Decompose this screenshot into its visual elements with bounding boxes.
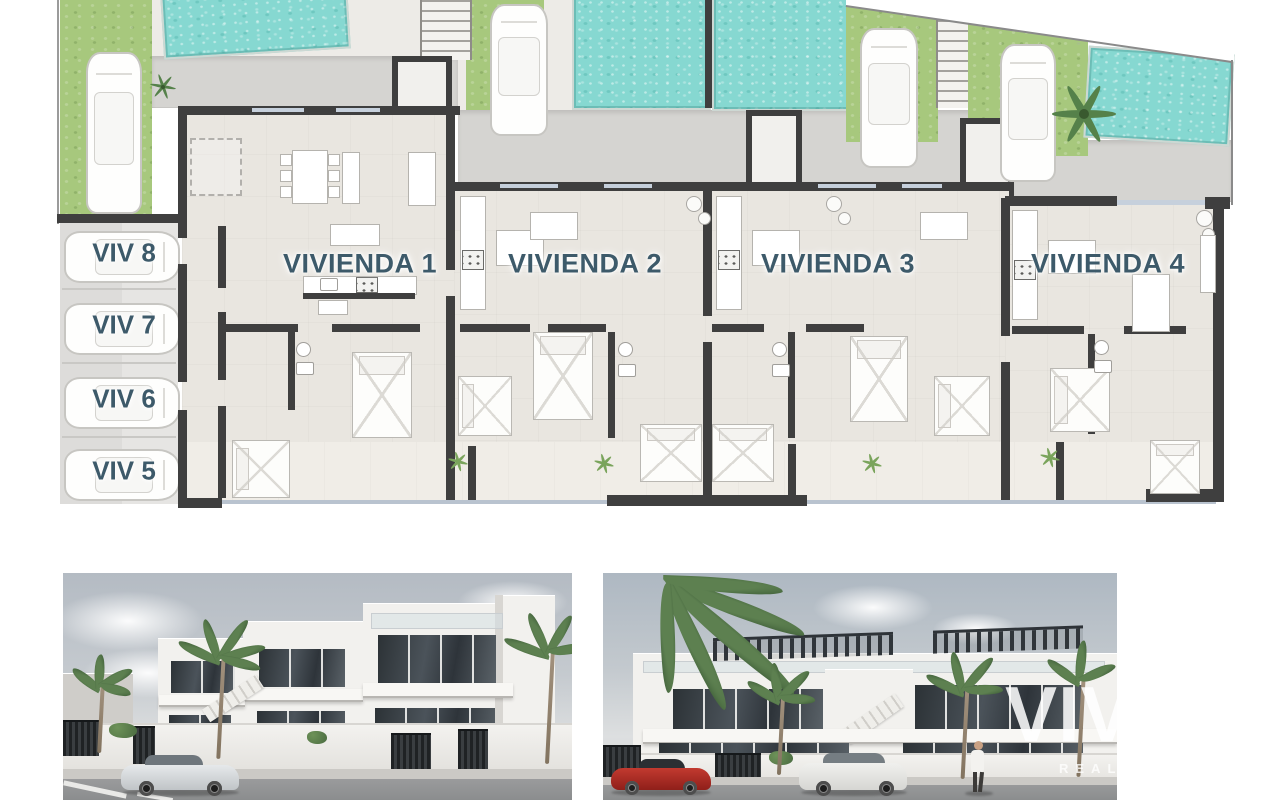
car-icon bbox=[860, 28, 918, 168]
chair bbox=[280, 170, 292, 182]
dining-table bbox=[1132, 274, 1170, 332]
stall-divider bbox=[62, 436, 176, 438]
wall bbox=[57, 214, 186, 223]
wall bbox=[332, 324, 420, 332]
pool-2 bbox=[572, 0, 711, 110]
car-icon bbox=[1000, 44, 1056, 182]
chair bbox=[328, 170, 340, 182]
sofa bbox=[330, 224, 380, 246]
stairs-entry-left bbox=[420, 0, 472, 60]
unit-label-vivienda-1: VIVIENDA 1 bbox=[283, 249, 437, 280]
balcony-slab bbox=[363, 683, 513, 698]
plant-pot bbox=[686, 196, 702, 212]
wall bbox=[712, 324, 764, 332]
plant-pot bbox=[1196, 210, 1213, 227]
site-plan: VIVIENDA 1 VIVIENDA 2 VIVIENDA 3 VIVIEND… bbox=[0, 0, 1280, 515]
window bbox=[336, 108, 380, 112]
bed-icon bbox=[934, 376, 990, 436]
palm-icon bbox=[1052, 82, 1116, 146]
window bbox=[902, 184, 942, 188]
gate bbox=[458, 729, 488, 771]
person-leg bbox=[973, 772, 977, 792]
sink bbox=[772, 364, 790, 377]
boundary-line-left bbox=[57, 0, 59, 224]
boundary-line-right bbox=[1231, 60, 1233, 205]
car-icon bbox=[86, 52, 142, 214]
car-icon bbox=[490, 4, 548, 136]
wall bbox=[703, 188, 712, 316]
wall bbox=[608, 332, 615, 438]
bed-icon bbox=[640, 424, 702, 482]
window bbox=[604, 184, 652, 188]
car-icon bbox=[799, 753, 907, 797]
wall bbox=[303, 293, 415, 299]
unit-label-vivienda-4: VIVIENDA 4 bbox=[1031, 249, 1185, 280]
window bbox=[818, 184, 876, 188]
gate bbox=[63, 720, 99, 756]
roof-glass-rail bbox=[371, 613, 503, 629]
stall-divider bbox=[62, 362, 176, 364]
cloud bbox=[813, 585, 933, 630]
wall bbox=[218, 406, 226, 498]
wall bbox=[788, 444, 796, 500]
car-icon bbox=[611, 757, 711, 797]
parking-label-viv-7: VIV 7 bbox=[92, 310, 156, 341]
cabinet bbox=[342, 152, 360, 204]
chair bbox=[328, 154, 340, 166]
palm-frond bbox=[1052, 110, 1116, 118]
parking-label-viv-5: VIV 5 bbox=[92, 456, 156, 487]
toilet bbox=[618, 342, 633, 357]
watermark-subtitle: REAL bbox=[1059, 761, 1117, 776]
wall bbox=[460, 324, 530, 332]
bed-icon bbox=[850, 336, 908, 422]
watermark-logo: VIVA bbox=[1005, 675, 1117, 753]
wall bbox=[1001, 362, 1010, 502]
plant-icon bbox=[448, 452, 468, 472]
wall bbox=[788, 332, 795, 438]
toilet bbox=[772, 342, 787, 357]
sofa bbox=[920, 212, 968, 240]
chair bbox=[280, 154, 292, 166]
stove bbox=[718, 250, 740, 270]
person-head bbox=[974, 741, 983, 750]
bed-icon bbox=[533, 332, 593, 420]
wall bbox=[446, 112, 455, 270]
chair bbox=[280, 186, 292, 198]
bed-icon bbox=[1150, 440, 1200, 494]
unit-label-vivienda-2: VIVIENDA 2 bbox=[508, 249, 662, 280]
bed-icon bbox=[232, 440, 290, 498]
wall bbox=[226, 324, 298, 332]
wall bbox=[218, 226, 226, 288]
car-wheel bbox=[207, 781, 222, 796]
window bbox=[500, 184, 558, 188]
upper-window-strip bbox=[378, 635, 496, 683]
window bbox=[1117, 200, 1205, 205]
bed-icon bbox=[1050, 368, 1110, 432]
wall bbox=[468, 446, 476, 500]
sink bbox=[320, 278, 338, 291]
pergola-dashed bbox=[190, 138, 242, 196]
exterior-photo-left bbox=[63, 573, 572, 800]
pool-divider-wall bbox=[705, 0, 712, 108]
bed-icon bbox=[712, 424, 774, 482]
unit-label-vivienda-3: VIVIENDA 3 bbox=[761, 249, 915, 280]
parking-label-viv-8: VIV 8 bbox=[92, 238, 156, 269]
person-body bbox=[971, 750, 984, 773]
dining-table bbox=[292, 150, 328, 204]
wall bbox=[178, 498, 222, 508]
bathtub bbox=[318, 300, 348, 315]
car-wheel bbox=[625, 781, 639, 795]
wall bbox=[703, 342, 712, 502]
wall bbox=[178, 106, 460, 115]
wall bbox=[178, 410, 187, 506]
wall bbox=[806, 324, 864, 332]
upper-window-strip bbox=[171, 661, 235, 693]
car-wheel bbox=[816, 781, 831, 796]
car-wheel bbox=[879, 781, 894, 796]
person-leg bbox=[978, 772, 984, 792]
pool-3 bbox=[712, 0, 850, 111]
bed-icon bbox=[458, 376, 512, 436]
page: VIVIENDA 1 VIVIENDA 2 VIVIENDA 3 VIVIEND… bbox=[0, 0, 1280, 800]
wall bbox=[1005, 196, 1117, 206]
wall bbox=[218, 312, 226, 380]
plant-icon bbox=[862, 454, 882, 474]
sofa bbox=[530, 212, 578, 240]
plant-icon bbox=[594, 454, 614, 474]
hedge bbox=[307, 731, 327, 744]
wall bbox=[288, 332, 295, 410]
parking-label-viv-6: VIV 6 bbox=[92, 384, 156, 415]
wall bbox=[607, 495, 807, 506]
entry-porch-2 bbox=[746, 110, 802, 188]
stairs-entry-right bbox=[936, 10, 972, 108]
wall bbox=[548, 324, 606, 332]
chair bbox=[328, 186, 340, 198]
wall bbox=[1012, 326, 1084, 334]
stall-divider bbox=[62, 288, 176, 290]
window bbox=[252, 108, 304, 112]
wall bbox=[1001, 198, 1010, 336]
hedge bbox=[109, 723, 137, 738]
exterior-photo-right: VIVA REAL bbox=[603, 573, 1117, 800]
plant-pot bbox=[838, 212, 851, 225]
wardrobe bbox=[1200, 235, 1216, 293]
wardrobe bbox=[408, 152, 436, 206]
sink bbox=[1094, 360, 1112, 373]
wall bbox=[178, 264, 187, 382]
bed-icon bbox=[352, 352, 412, 438]
stove bbox=[462, 250, 484, 270]
car-wheel bbox=[683, 781, 697, 795]
sink bbox=[618, 364, 636, 377]
toilet bbox=[296, 342, 311, 357]
toilet bbox=[1094, 340, 1109, 355]
plant-icon bbox=[1040, 448, 1060, 468]
wall bbox=[178, 106, 187, 238]
plant-pot bbox=[698, 212, 711, 225]
upper-window-strip bbox=[259, 649, 345, 687]
sink bbox=[296, 362, 314, 375]
palm-icon bbox=[150, 74, 176, 100]
plant-pot bbox=[826, 196, 842, 212]
car-wheel bbox=[139, 781, 154, 796]
car-icon bbox=[121, 755, 239, 797]
person-icon bbox=[969, 741, 987, 795]
balcony-slab bbox=[245, 689, 363, 702]
